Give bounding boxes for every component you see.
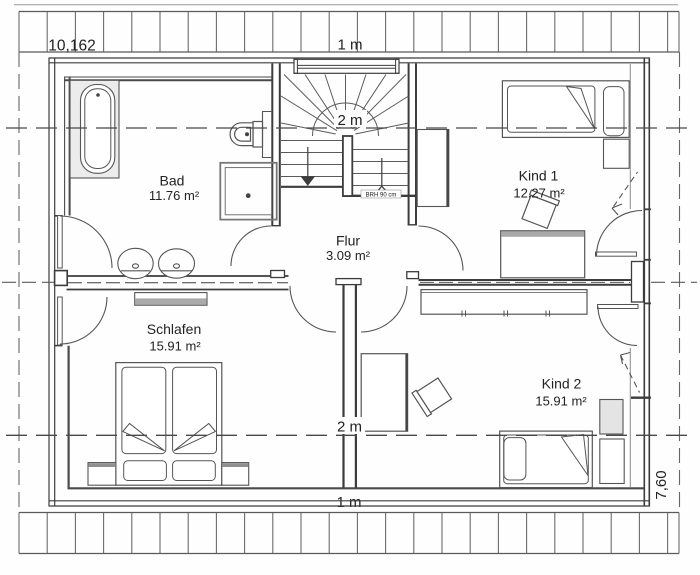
svg-text:Bad: Bad (160, 173, 185, 189)
svg-text:Flur: Flur (336, 232, 360, 248)
svg-text:Kind 1: Kind 1 (519, 168, 559, 184)
svg-text:2 m: 2 m (337, 112, 362, 129)
svg-text:1 m: 1 m (336, 494, 361, 511)
svg-text:BRH 90 cm: BRH 90 cm (366, 192, 397, 198)
svg-text:15.91 m²: 15.91 m² (535, 394, 587, 409)
svg-text:Schlafen: Schlafen (147, 321, 201, 337)
svg-text:15.91 m²: 15.91 m² (149, 339, 201, 354)
svg-text:11.76 m²: 11.76 m² (149, 188, 200, 203)
svg-text:1 m: 1 m (337, 37, 362, 54)
svg-text:10,162: 10,162 (48, 38, 95, 55)
svg-text:3.09 m²: 3.09 m² (326, 248, 371, 263)
svg-text:2 m: 2 m (337, 419, 362, 436)
svg-text:12.27 m²: 12.27 m² (513, 186, 565, 201)
svg-text:Kind 2: Kind 2 (542, 376, 582, 392)
svg-text:7,60: 7,60 (653, 470, 670, 499)
